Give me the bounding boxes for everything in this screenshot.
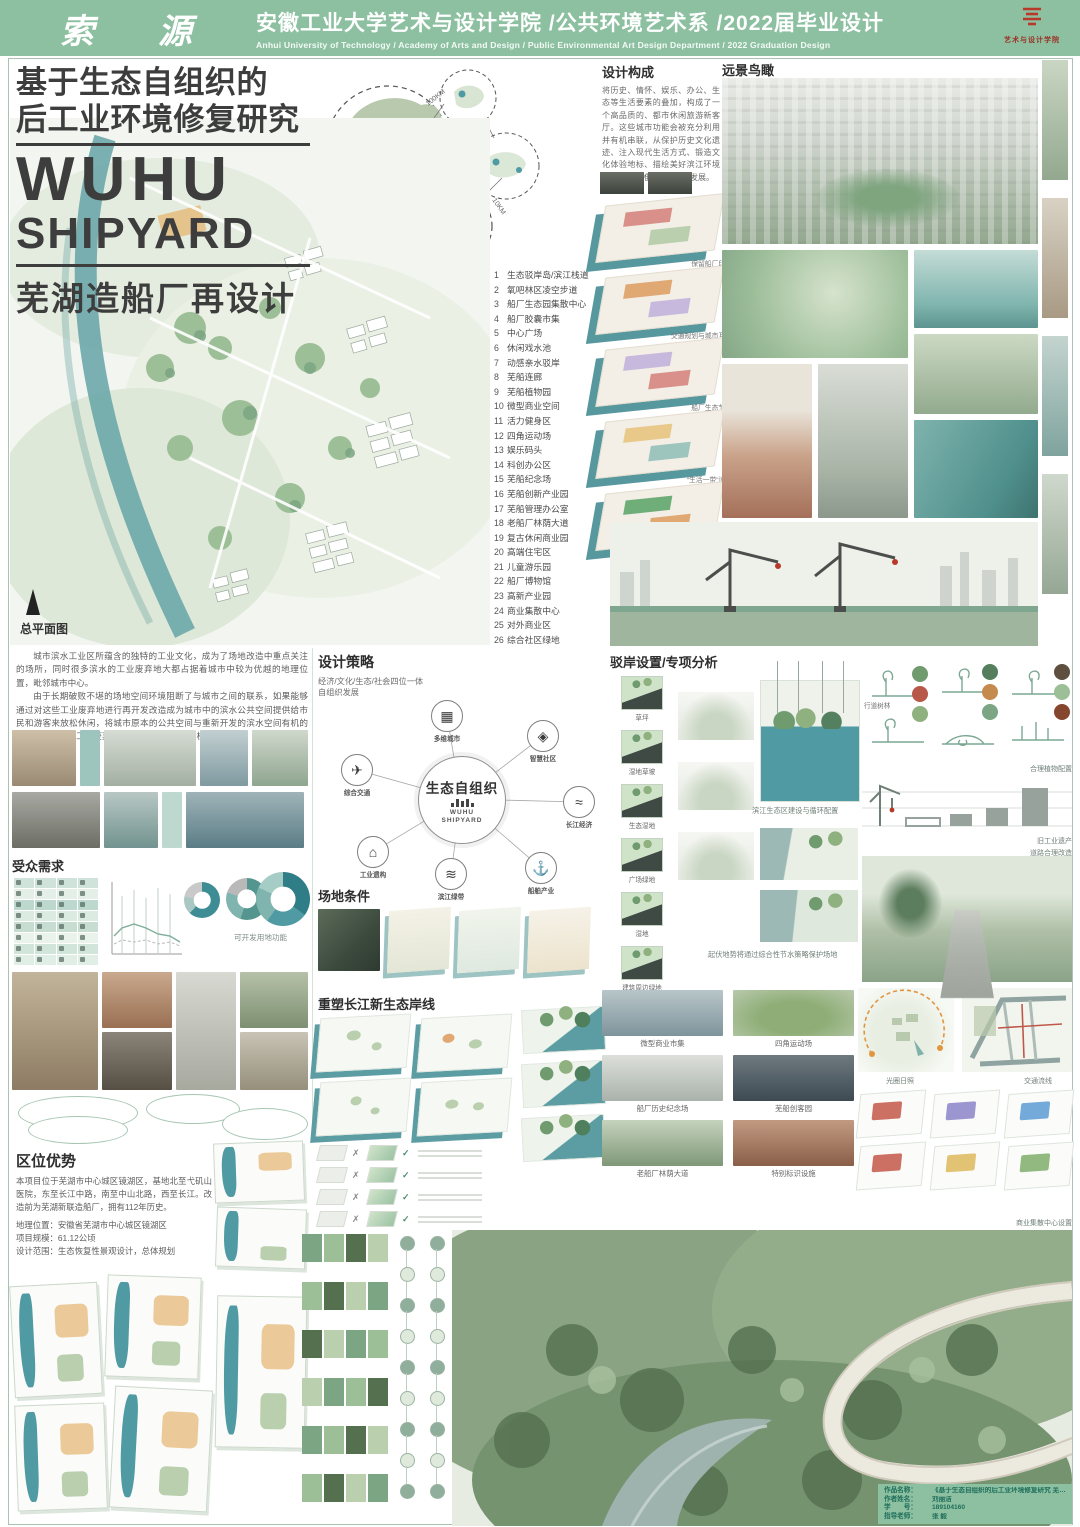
zoning-diagram-art: [595, 265, 724, 335]
decor-shape: [452, 1230, 1072, 1526]
decor-shape: [346, 1330, 366, 1358]
site-photo-image: [733, 1120, 854, 1166]
bottom-map-tiles: [12, 1276, 306, 1522]
decor-shape: [822, 661, 823, 713]
context-photo-strip: [12, 730, 308, 852]
zoning-patch: [623, 207, 672, 226]
species-node: [430, 1391, 445, 1406]
audience-icon-cell: [57, 889, 77, 899]
note-line: [418, 1199, 482, 1201]
strip-photo: [1042, 198, 1068, 318]
design-composition-title: 设计构成: [602, 62, 720, 81]
legend-item-label: 动感亲水驳岸: [507, 356, 560, 371]
site-photo: 船厂历史纪念场: [602, 1055, 723, 1114]
legend-item-number: 21: [494, 560, 507, 575]
species-link: [406, 1311, 407, 1329]
species-link: [436, 1311, 437, 1329]
audience-icon-cell: [35, 955, 55, 965]
decor-shape: [368, 1330, 388, 1358]
legend-item-number: 2: [494, 283, 507, 298]
note-line: [418, 1177, 482, 1179]
old-street-photo: [12, 972, 98, 1090]
planting-diagrams: [862, 652, 1072, 764]
decor-shape: [346, 1378, 366, 1406]
legend-item-number: 18: [494, 516, 507, 531]
speech-bubble: [28, 1116, 128, 1144]
legend-item-number: 19: [494, 531, 507, 546]
donut-chart-3: [256, 872, 310, 926]
legend-item-label: 氧吧林区凌空步道: [507, 283, 577, 298]
legend-item-number: 4: [494, 312, 507, 327]
decor-shape: [648, 172, 692, 194]
legend-item-label: 芜船管理办公室: [507, 502, 569, 517]
revetment-analysis-section: 驳岸设置/专项分析 草坪湿地草坡生态湿地广场绿地湿地建筑周边绿地 滨江生态区建设…: [610, 652, 858, 986]
zone-patch: [60, 1423, 95, 1455]
decor-shape: [896, 1032, 910, 1041]
decor-shape: [775, 563, 781, 569]
title-cn-line2: 后工业环境修复研究: [16, 101, 310, 138]
decor-shape: [678, 832, 754, 880]
legend-item-label: 芜船创新产业园: [507, 487, 569, 502]
location-body: 本项目位于芜湖市中心城区镜湖区，基地北至弋矶山医院，东至长江中路，南至中山北路，…: [16, 1175, 212, 1214]
revetment-axon: [621, 676, 663, 710]
regional-map-tile: [109, 1386, 213, 1513]
decor-shape: [368, 1282, 388, 1310]
decor-shape: [471, 803, 474, 807]
decor-shape: [459, 91, 466, 98]
legend-item-number: 11: [494, 414, 507, 429]
riverside-eco-block-diagram: [760, 680, 860, 802]
planting-caption: 合理植物配置: [1030, 764, 1072, 774]
strategy-node-label: 智慧社区: [526, 753, 560, 763]
decor-shape: [1030, 1000, 1036, 1060]
audience-line-chart: [104, 878, 184, 962]
site-condition-thumbs: [318, 909, 605, 971]
site-photo: 芜船创客园: [733, 1055, 854, 1114]
river-shape: [118, 1394, 139, 1498]
decor-shape: [302, 1234, 322, 1262]
audience-icon-cell: [78, 933, 98, 943]
legend-item: 22船厂博物馆: [494, 574, 608, 589]
header-titles: 安徽工业大学艺术与设计学院 /公共环境艺术系 /2022届毕业设计 Anhui …: [256, 7, 884, 50]
decor-shape: [488, 178, 502, 192]
species-node: [400, 1422, 415, 1437]
strategy-node: ⌂工业遗构: [356, 836, 390, 879]
decor-shape: [302, 1282, 322, 1310]
decor-shape: [1054, 704, 1070, 720]
species-node: [430, 1298, 445, 1313]
species-link: [436, 1373, 437, 1391]
species-node: [400, 1298, 415, 1313]
decor-shape: [610, 522, 1038, 646]
cross-mark-icon: ✗: [352, 1192, 362, 1203]
river-shape: [17, 1293, 36, 1388]
species-node: [430, 1329, 445, 1344]
audience-icon-cell: [57, 933, 77, 943]
decor-shape: [1008, 558, 1018, 612]
zoning-diagram-art: [595, 409, 724, 479]
donut-chart-1: [184, 882, 220, 918]
check-mark-icon: ✓: [402, 1170, 412, 1181]
location-map: [215, 1206, 307, 1269]
note-line: [418, 1155, 482, 1157]
info-row: 作者姓名：刘丽洁: [884, 1496, 1066, 1505]
decor-shape: [466, 799, 469, 807]
decor-shape: [620, 1368, 684, 1432]
decor-shape: [872, 669, 1064, 745]
audience-icon-cell: [35, 944, 55, 954]
shoreline-slab: [316, 1077, 412, 1136]
species-node: [430, 1422, 445, 1437]
legend-item: 15芜船纪念场: [494, 472, 608, 487]
legend-item: 6休闲戏水池: [494, 341, 608, 356]
design-strategy-section: 设计策略 经济/文化/生态/社会四位一体 自组织发展 生态自组织 WUHU SH…: [318, 652, 605, 886]
site-photo-image: [602, 1120, 723, 1166]
cross-mark-icon: ✗: [352, 1170, 362, 1181]
legend-item-label: 微型商业空间: [507, 399, 560, 414]
decor-shape: [546, 1324, 598, 1376]
zoning-patch: [623, 351, 672, 370]
decor-shape: [1054, 664, 1070, 680]
river-shape: [22, 1412, 39, 1502]
species-node: [430, 1267, 445, 1282]
decor-shape: [493, 159, 500, 166]
zoning-diagram-list: 保留船厂印记交通规划与城市互通船厂生态节点“生活一带”设计完善的蓝绿网络: [600, 198, 732, 558]
audience-icon-cell: [57, 911, 77, 921]
legend-item: 19复古休闲商业园: [494, 531, 608, 546]
legend-item: 5中心广场: [494, 326, 608, 341]
info-row: 作品名称：《基于生态自组织的后工业环境修复研究 芜湖造船厂再设计》: [884, 1487, 1066, 1496]
business-center-axon-grid: [858, 1092, 1072, 1188]
info-row-label: 作者姓名：: [884, 1496, 932, 1505]
zoning-patch: [648, 298, 691, 318]
site-photo: 微型商业市集: [602, 990, 723, 1049]
audience-icon-cell: [35, 878, 55, 888]
decor-shape: [834, 606, 846, 612]
business-axon-tile: [1004, 1089, 1075, 1138]
comparison-axon-before: [316, 1189, 348, 1205]
master-plan-label: 总平面图: [20, 620, 68, 637]
audience-icon-grid: [14, 878, 98, 965]
audience-icon-cell: [57, 922, 77, 932]
university-title: 安徽工业大学艺术与设计学院 /公共环境艺术系 /2022届毕业设计: [256, 7, 884, 37]
strategy-node: ≈长江经济: [562, 786, 596, 829]
revetment-axon-label: 广场绿地: [610, 874, 674, 884]
developable-land-caption: 可开发用地功能: [234, 932, 287, 943]
revetment-axon: [621, 784, 663, 818]
decor-shape: [461, 801, 464, 807]
decor-shape: [208, 526, 232, 550]
decor-shape: [640, 560, 650, 612]
decor-shape: [302, 1474, 322, 1502]
business-axon-tile: [930, 1141, 1001, 1190]
species-link: [436, 1466, 437, 1484]
business-axon-tile: [930, 1089, 1001, 1138]
legend-item: 7动感亲水驳岸: [494, 356, 608, 371]
decor-shape: [906, 818, 940, 826]
design-composition-section: 设计构成 将历史、情怀、娱乐、办公、生态等生活要素的叠加，构成了一个高品质的、都…: [602, 62, 720, 184]
context-photo: [104, 730, 196, 786]
legend-item: 4船厂胶囊市集: [494, 312, 608, 327]
location-line1: 地理位置：安徽省芜湖市中心城区镜湖区: [16, 1219, 212, 1232]
school-logo-icon: [1019, 5, 1045, 29]
teal-accent-block: [80, 730, 100, 786]
decor-shape: [324, 1378, 344, 1406]
greenbelt-icon: ≋: [435, 858, 467, 890]
design-strategy-title: 设计策略: [318, 652, 605, 672]
check-mark-icon: ✓: [402, 1214, 412, 1225]
decor-shape: [368, 1426, 388, 1454]
info-row: 学 号：189104160: [884, 1504, 1066, 1513]
decor-shape: [588, 1366, 616, 1394]
river-shape: [223, 1305, 239, 1434]
species-link: [436, 1249, 437, 1267]
audience-icon-cell: [35, 889, 55, 899]
revetment-type-list: 草坪湿地草坡生态湿地广场绿地湿地建筑周边绿地: [610, 676, 674, 1000]
info-row-value: 《基于生态自组织的后工业环境修复研究 芜湖造船厂再设计》: [932, 1487, 1066, 1496]
info-row-label: 学 号：: [884, 1504, 932, 1513]
note-line: [418, 1194, 482, 1196]
decor-shape: [442, 1033, 455, 1043]
revetment-axon-label: 湿地: [610, 928, 674, 938]
decor-shape: [678, 762, 754, 810]
decor-shape: [950, 814, 972, 826]
strategy-bubble-diagram: 生态自组织 WUHU SHIPYARD ▦多维城市◈智慧社区≈长江经济⚓船舶产业…: [318, 694, 605, 886]
decor-shape: [516, 167, 522, 173]
strategy-node-label: 滨江绿带: [434, 891, 468, 901]
legend-item: 13娱乐码头: [494, 443, 608, 458]
audience-needs-title: 受众需求: [12, 856, 308, 875]
species-link: [406, 1466, 407, 1484]
legend-item-number: 3: [494, 297, 507, 312]
legend-item-label: 休闲戏水池: [507, 341, 551, 356]
species-link: [406, 1280, 407, 1298]
school-logo: 艺术与设计学院: [1000, 5, 1064, 45]
legend-item-label: 综合社区绿地: [507, 633, 560, 648]
decor-shape: [368, 1378, 388, 1406]
site-photo-image: [602, 1055, 723, 1101]
decor-shape: [871, 1101, 902, 1120]
legend-item: 16芜船创新产业园: [494, 487, 608, 502]
park-aerial-render: [722, 250, 908, 358]
decor-shape: [600, 172, 644, 194]
check-mark-icon: ✓: [402, 1192, 412, 1203]
location-map-tiles: [214, 1142, 308, 1272]
plant-photo-group: [302, 1330, 394, 1358]
comparison-axon-before: [316, 1211, 348, 1227]
eco-block-caption: 滨江生态区建设与循环配置: [752, 806, 838, 816]
decor-shape: [243, 406, 257, 420]
legend-item-label: 船厂生态园集散中心: [507, 297, 586, 312]
green-patch: [62, 1471, 89, 1497]
decor-shape: [454, 86, 484, 109]
strip-photo: [1042, 60, 1068, 180]
university-title-en: Anhui University of Technology / Academy…: [256, 40, 884, 50]
context-photo: [252, 730, 308, 786]
revetment-axon: [621, 946, 663, 980]
species-link: [406, 1249, 407, 1267]
revetment-axon-label: 生态湿地: [610, 820, 674, 830]
location-line2: 项目规模：61.12公顷: [16, 1232, 212, 1245]
decor-shape: [892, 559, 898, 565]
plant-photo-group: [302, 1426, 394, 1454]
decor-shape: [946, 1324, 998, 1376]
species-link: [406, 1435, 407, 1453]
context-photo: [186, 792, 304, 848]
context-photo: [12, 792, 100, 848]
title-en-line1: WUHU: [16, 151, 310, 209]
species-link: [406, 1373, 407, 1391]
species-link: [436, 1404, 437, 1422]
column-divider: [312, 648, 313, 1140]
calligraphy-logo: 索 源: [60, 4, 250, 53]
legend-item-label: 娱乐码头: [507, 443, 542, 458]
river-economy-icon: ≈: [563, 786, 595, 818]
legend-item-number: 24: [494, 604, 507, 619]
location-advantage-section: 区位优势 本项目位于芜湖市中心城区镜湖区，基地北至弋矶山医院，东至长江中路，南至…: [16, 1150, 212, 1258]
legend-item: 12四角运动场: [494, 429, 608, 444]
revetment-axon: [621, 730, 663, 764]
legend-item-number: 17: [494, 502, 507, 517]
vegetation-block: [521, 1006, 606, 1054]
shoreline-slab: [417, 1077, 513, 1136]
legend-item: 20高端住宅区: [494, 545, 608, 560]
audience-icon-cell: [57, 955, 77, 965]
zoning-diagram: 船厂生态节点: [600, 342, 732, 414]
legend-item-label: 芜船植物园: [507, 385, 551, 400]
legend-item: 24商业集散中心: [494, 604, 608, 619]
decor-shape: [892, 1018, 902, 1025]
legend-item-number: 20: [494, 545, 507, 560]
decor-shape: [678, 692, 754, 740]
title-subtitle: 芜湖造船厂再设计: [16, 272, 310, 320]
decor-shape: [978, 1426, 1006, 1454]
revetment-axon: [621, 838, 663, 872]
strategy-node: ✈综合交通: [340, 754, 374, 797]
decor-shape: [1022, 788, 1048, 826]
decor-shape: [12, 792, 308, 848]
smart-community-icon: ◈: [527, 720, 559, 752]
decor-shape: [221, 1147, 237, 1197]
legend-item: 11活力健身区: [494, 414, 608, 429]
species-link: [436, 1435, 437, 1453]
cross-mark-icon: ✗: [352, 1148, 362, 1159]
regional-map-tile: [215, 1295, 308, 1449]
comparison-note-lines: [418, 1213, 482, 1226]
water-strategy-caption: 起伏地势将通过综合性节水策略保护场地: [708, 950, 837, 960]
legend-item-label: 复古休闲商业园: [507, 531, 569, 546]
legend-item-number: 16: [494, 487, 507, 502]
strategy-node-label: 工业遗构: [356, 869, 390, 879]
green-space-axon: [457, 907, 521, 974]
strategy-node: ◈智慧社区: [526, 720, 560, 763]
decor-shape: [1004, 1002, 1012, 1060]
legend-item-label: 对外商业区: [507, 618, 551, 633]
strategy-node-label: 长江经济: [562, 819, 596, 829]
site-photo-caption: 老船厂林荫大道: [602, 1168, 723, 1179]
species-link: [406, 1404, 407, 1422]
regional-map-tile: [14, 1402, 108, 1511]
ship-industry-icon: ⚓: [525, 852, 557, 884]
decor-shape: [368, 1234, 388, 1262]
title-block: 基于生态自组织的 后工业环境修复研究 WUHU SHIPYARD 芜湖造船厂再设…: [16, 64, 310, 320]
transport-icon: ✈: [341, 754, 373, 786]
species-node: [430, 1484, 445, 1499]
decor-shape: [451, 803, 454, 807]
revetment-sketches: [678, 692, 754, 902]
legend-item: 25对外商业区: [494, 618, 608, 633]
decor-shape: [980, 1060, 1060, 1064]
context-photo: [12, 730, 76, 786]
plaza-render: [818, 364, 908, 518]
legend-item-number: 14: [494, 458, 507, 473]
legend-item-label: 科创办公区: [507, 458, 551, 473]
decor-shape: [798, 661, 799, 713]
info-row-value: 张 毅: [932, 1513, 947, 1522]
legend-item-number: 5: [494, 326, 507, 341]
decor-shape: [12, 730, 308, 786]
species-node: [400, 1329, 415, 1344]
zoning-diagram: 保留船厂印记: [600, 198, 732, 270]
sunlight-arc-map: [858, 988, 954, 1072]
graduation-design-poster: 索 源 安徽工业大学艺术与设计学院 /公共环境艺术系 /2022届毕业设计 An…: [0, 0, 1080, 1527]
location-map: [213, 1140, 305, 1203]
title-rule2: [16, 264, 310, 267]
decor-shape: [324, 1330, 344, 1358]
decor-shape: [906, 1014, 918, 1022]
decor-shape: [777, 661, 778, 713]
note-line: [418, 1216, 482, 1218]
decor-shape: [258, 1152, 292, 1171]
legend-item-label: 四角运动场: [507, 429, 551, 444]
audience-icon-cell: [78, 955, 98, 965]
zoning-patch: [648, 370, 691, 390]
audience-icon-cell: [14, 955, 34, 965]
decor-shape: [945, 1101, 976, 1120]
regional-map-tile: [104, 1274, 202, 1379]
audience-icon-cell: [78, 922, 98, 932]
decor-shape: [871, 1153, 902, 1172]
decor-shape: [324, 1426, 344, 1454]
legend-item-number: 6: [494, 341, 507, 356]
legend-item-label: 儿童游乐园: [507, 560, 551, 575]
plant-photo-group: [302, 1282, 394, 1310]
road-network-axon: [527, 907, 591, 974]
legend-item: 1生态驳岸岛/滨江栈道: [494, 268, 608, 283]
brick-building-photo: [102, 972, 172, 1028]
satellite-map: [318, 909, 380, 971]
legend-item: 14科创办公区: [494, 458, 608, 473]
decor-shape: [864, 990, 944, 1054]
shoreline-section-2: [760, 890, 858, 942]
audience-icon-cell: [57, 900, 77, 910]
site-photo-image: [733, 1055, 854, 1101]
audience-icon-cell: [78, 900, 98, 910]
decor-shape: [1022, 1004, 1024, 1058]
decor-shape: [610, 606, 1038, 612]
intro-paragraph-1: 城市滨水工业区所蕴含的独特的工业文化，成为了场地改造中重点关注的场所，同时很多滨…: [16, 650, 308, 690]
zone-patch: [54, 1303, 88, 1338]
industrial-heritage-icon: ⌂: [357, 836, 389, 868]
zoning-patch: [648, 442, 691, 462]
audience-icon-cell: [57, 944, 77, 954]
decor-shape: [1012, 722, 1064, 740]
species-link: [436, 1342, 437, 1360]
strategy-comparison-list: ✗✓✗✓✗✓✗✓: [318, 1142, 518, 1230]
decor-shape: [122, 888, 170, 954]
info-row-label: 作品名称：: [884, 1487, 932, 1496]
species-node: [430, 1360, 445, 1375]
